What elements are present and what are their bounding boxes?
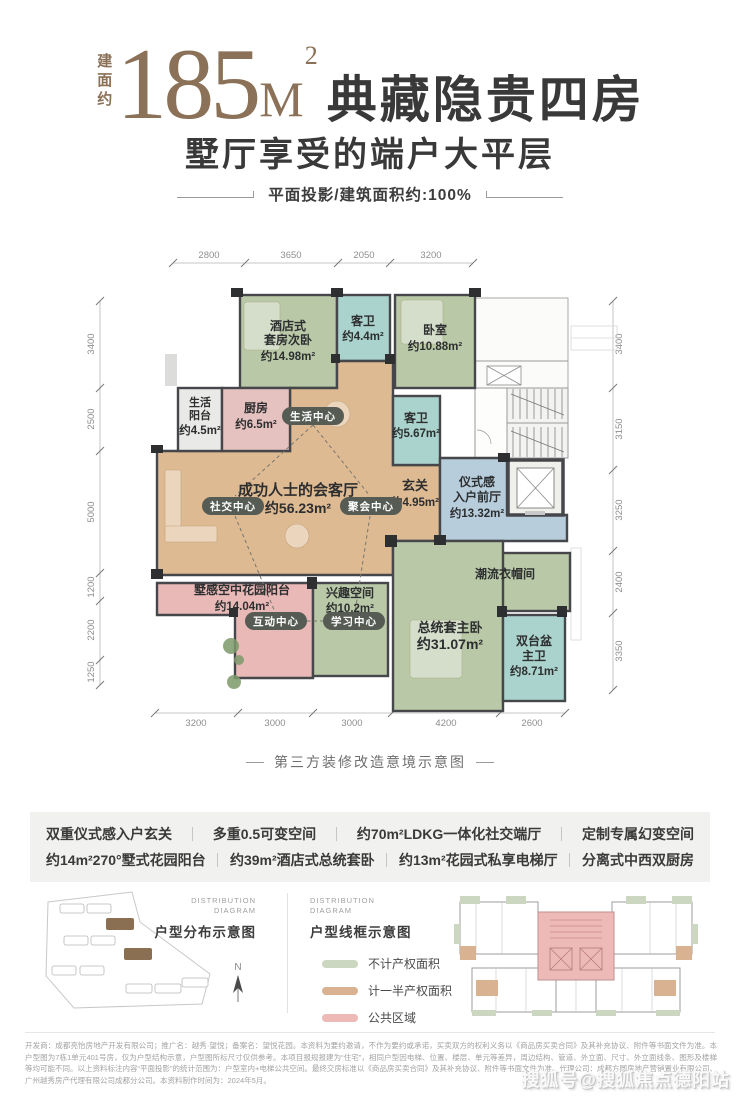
- wireframe-label-block: DISTRIBUTIONDIAGRAM 户型线框示意图: [310, 896, 450, 941]
- svg-text:客卫: 客卫: [350, 313, 375, 328]
- tagline-row: 平面投影/建筑面积约:100%: [0, 183, 740, 205]
- feature-row-1: 双重仪式感入户玄关 多重0.5可变空间 约70m²LDKG一体化社交端厅 定制专…: [46, 821, 694, 847]
- legend-label: 计一半产权面积: [368, 982, 452, 999]
- svg-text:卧室: 卧室: [423, 322, 447, 337]
- floorplan-drawing: 2800 3650 2050 3200 3400 2500 5000 1200 …: [85, 248, 650, 740]
- legend-swatch-public-area: [322, 1014, 358, 1022]
- svg-text:约8.71m²: 约8.71m²: [510, 664, 558, 678]
- svg-text:3000: 3000: [341, 718, 362, 729]
- feature-separator: [561, 827, 562, 841]
- svg-text:3000: 3000: [264, 718, 285, 729]
- adjacent-unit-hint: [571, 548, 581, 640]
- svg-text:1200: 1200: [86, 576, 97, 597]
- svg-text:3200: 3200: [185, 718, 206, 729]
- watermark: 搜狐号@搜狐焦点德阳站: [521, 1066, 730, 1092]
- svg-text:4200: 4200: [435, 718, 456, 729]
- footer-rule: [25, 1032, 715, 1033]
- feature-item: 约70m²LDKG一体化社交端厅: [357, 824, 541, 844]
- wireframe-label-cn: 户型线框示意图: [310, 921, 450, 941]
- feature-item: 多重0.5可变空间: [213, 824, 316, 844]
- svg-text:成功人士的会客厅: 成功人士的会客厅: [238, 481, 358, 499]
- svg-text:3400: 3400: [86, 333, 97, 354]
- feature-item: 约13m²花园式私享电梯厅: [399, 850, 558, 870]
- svg-text:墅感空中花园阳台: 墅感空中花园阳台: [194, 582, 290, 597]
- svg-text:兴趣空间: 兴趣空间: [326, 585, 374, 600]
- svg-text:3200: 3200: [420, 250, 441, 261]
- svg-text:1250: 1250: [86, 661, 97, 682]
- diagram-divider: [287, 893, 288, 1013]
- room-sky-garden: [157, 583, 313, 678]
- svg-text:3350: 3350: [614, 640, 625, 661]
- tagline: 平面投影/建筑面积约:100%: [268, 183, 472, 205]
- tagline-rule-left: [177, 191, 254, 198]
- badge-party-center: 聚会中心: [347, 500, 394, 513]
- area-number: 185: [116, 44, 257, 126]
- svg-text:套房次卧: 套房次卧: [263, 332, 312, 347]
- distribution-label-en: DISTRIBUTIONDIAGRAM: [148, 896, 256, 916]
- feature-separator: [192, 827, 193, 841]
- svg-text:约56.23m²: 约56.23m²: [265, 500, 331, 516]
- legend-swatch-half-property: [322, 987, 358, 995]
- svg-text:生活: 生活: [189, 395, 211, 409]
- svg-text:玄关: 玄关: [402, 478, 428, 493]
- area-unit: M2: [259, 74, 316, 124]
- svg-text:约5.67m²: 约5.67m²: [392, 426, 440, 440]
- feature-item: 双重仪式感入户玄关: [46, 824, 172, 844]
- page-subtitle: 墅厅享受的端户大平层: [0, 127, 740, 176]
- svg-text:3150: 3150: [614, 418, 625, 439]
- badge-social-center: 社交中心: [209, 500, 256, 513]
- feature-item: 约14m²270°墅式花园阳台: [46, 850, 206, 870]
- svg-text:约4.4m²: 约4.4m²: [342, 329, 384, 343]
- svg-text:5000: 5000: [86, 501, 97, 522]
- plan-caption: 第三方装修改造意境示意图: [0, 752, 740, 772]
- distribution-label-block: DISTRIBUTIONDIAGRAM 户型分布示意图: [148, 896, 256, 941]
- badge-interact-center: 互动中心: [253, 615, 299, 628]
- svg-text:约4.5m²: 约4.5m²: [179, 423, 221, 437]
- legend-row: 计一半产权面积: [322, 982, 452, 999]
- page-title: 典藏隐贵四房: [327, 75, 645, 125]
- area-exponent: 2: [305, 41, 318, 70]
- svg-text:总统套主卧: 总统套主卧: [417, 620, 482, 635]
- svg-text:阳台: 阳台: [189, 408, 211, 422]
- room-guest-bath-top: [337, 295, 390, 361]
- caption-text: 第三方装修改造意境示意图: [274, 752, 466, 772]
- svg-text:厨房: 厨房: [244, 400, 268, 415]
- area-unit-letter: M: [259, 71, 303, 127]
- svg-text:3250: 3250: [614, 499, 625, 520]
- caption-dash-left: [246, 762, 264, 763]
- area-legend: 不计产权面积 计一半产权面积 公共区域: [322, 955, 452, 1036]
- svg-text:约14.98m²: 约14.98m²: [261, 349, 316, 363]
- legend-row: 公共区域: [322, 1009, 452, 1026]
- feature-separator: [336, 827, 337, 841]
- wireframe-core: [538, 912, 614, 980]
- svg-text:仪式感: 仪式感: [458, 474, 495, 489]
- legend-label: 公共区域: [368, 1009, 416, 1026]
- floorplan-poster: 建面约 185 M2 典藏隐贵四房 墅厅享受的端户大平层 平面投影/建筑面积约:…: [0, 0, 740, 1098]
- svg-text:N: N: [234, 962, 241, 973]
- badge-study-center: 学习中心: [331, 615, 377, 628]
- distribution-label-cn: 户型分布示意图: [148, 921, 256, 941]
- feature-row-2: 约14m²270°墅式花园阳台 约39m²酒店式总统套卧 约13m²花园式私享电…: [46, 847, 694, 873]
- svg-text:3650: 3650: [280, 250, 301, 261]
- wireframe-label-en: DISTRIBUTIONDIAGRAM: [310, 896, 450, 916]
- svg-text:3400: 3400: [614, 333, 625, 354]
- feature-item: 分离式中西双厨房: [582, 850, 694, 870]
- svg-text:双台盆: 双台盆: [516, 633, 553, 648]
- headline-block: 建面约 185 M2 典藏隐贵四房: [0, 44, 740, 126]
- feature-item: 约39m²酒店式总统套卧: [230, 850, 375, 870]
- built-area-label: 建面约: [95, 53, 110, 110]
- floorplate-wireframe: [446, 884, 706, 1026]
- svg-text:2600: 2600: [521, 718, 542, 729]
- svg-text:2800: 2800: [198, 250, 219, 261]
- legend-row: 不计产权面积: [322, 955, 452, 972]
- svg-text:约31.07m²: 约31.07m²: [417, 636, 483, 652]
- elevator: [508, 460, 563, 515]
- svg-text:2050: 2050: [353, 250, 374, 261]
- svg-text:约13.32m²: 约13.32m²: [450, 506, 505, 520]
- svg-text:客卫: 客卫: [403, 410, 428, 425]
- feature-separator: [386, 853, 387, 867]
- svg-text:约14.04m²: 约14.04m²: [215, 599, 270, 613]
- svg-text:约6.5m²: 约6.5m²: [235, 417, 277, 431]
- feature-item: 定制专属幻变空间: [582, 824, 694, 844]
- caption-dash-right: [476, 762, 494, 763]
- svg-text:约10.88m²: 约10.88m²: [408, 339, 463, 353]
- svg-text:主卫: 主卫: [522, 648, 546, 663]
- svg-text:入户前厅: 入户前厅: [453, 489, 501, 504]
- feature-separator: [217, 853, 218, 867]
- svg-text:酒店式: 酒店式: [270, 318, 306, 333]
- svg-text:2500: 2500: [86, 408, 97, 429]
- exterior-detail: [165, 354, 177, 386]
- tagline-rule-right: [486, 191, 563, 198]
- feature-separator: [569, 853, 570, 867]
- feature-strip: 双重仪式感入户玄关 多重0.5可变空间 约70m²LDKG一体化社交端厅 定制专…: [30, 812, 710, 882]
- legend-label: 不计产权面积: [368, 955, 440, 972]
- svg-text:潮流衣帽间: 潮流衣帽间: [475, 566, 535, 581]
- legend-swatch-no-property: [322, 960, 358, 968]
- north-compass: N: [228, 960, 248, 1006]
- svg-text:2400: 2400: [614, 571, 625, 592]
- badge-life-center: 生活中心: [290, 410, 336, 423]
- svg-text:2200: 2200: [86, 619, 97, 640]
